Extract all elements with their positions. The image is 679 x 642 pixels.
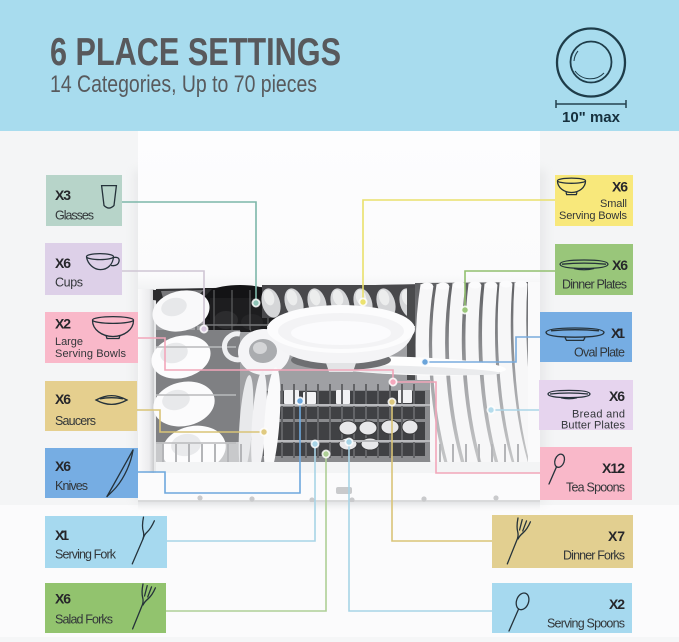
svg-text:Saucers: Saucers [55,414,96,428]
svg-text:Small: Small [600,198,627,210]
svg-text:X1: X1 [611,325,625,341]
svg-text:Large: Large [55,336,83,348]
svg-text:X6: X6 [55,391,71,407]
svg-text:X6: X6 [55,255,71,271]
svg-text:X1: X1 [55,527,69,543]
svg-text:Oval Plate: Oval Plate [574,346,625,360]
svg-text:X6: X6 [609,388,625,404]
svg-text:X7: X7 [608,528,625,544]
svg-text:Cups: Cups [55,276,83,290]
svg-text:Serving Fork: Serving Fork [55,548,117,562]
svg-text:6 PLACE SETTINGS: 6 PLACE SETTINGS [50,31,341,74]
svg-text:10" max: 10" max [562,109,621,126]
svg-text:Butter Plates: Butter Plates [561,420,626,432]
svg-text:X6: X6 [612,257,628,273]
svg-text:Salad Forks: Salad Forks [55,613,113,627]
svg-text:Knives: Knives [55,479,88,493]
svg-text:Dinner Plates: Dinner Plates [562,278,627,292]
svg-text:Serving Bowls: Serving Bowls [55,348,127,360]
svg-text:X6: X6 [55,458,71,474]
svg-text:X6: X6 [55,591,71,607]
svg-text:Tea Spoons: Tea Spoons [566,481,625,495]
svg-text:X2: X2 [609,596,625,612]
svg-text:Dinner Forks: Dinner Forks [563,549,625,563]
svg-text:14 Categories, Up to 70 pieces: 14 Categories, Up to 70 pieces [50,71,317,98]
svg-text:Glasses: Glasses [55,209,94,223]
svg-text:Serving Bowls: Serving Bowls [559,210,628,222]
svg-text:X2: X2 [55,316,71,332]
svg-text:X6: X6 [612,179,628,195]
svg-text:Serving Spoons: Serving Spoons [547,617,625,631]
svg-text:X12: X12 [602,460,625,476]
svg-text:X3: X3 [55,187,71,203]
